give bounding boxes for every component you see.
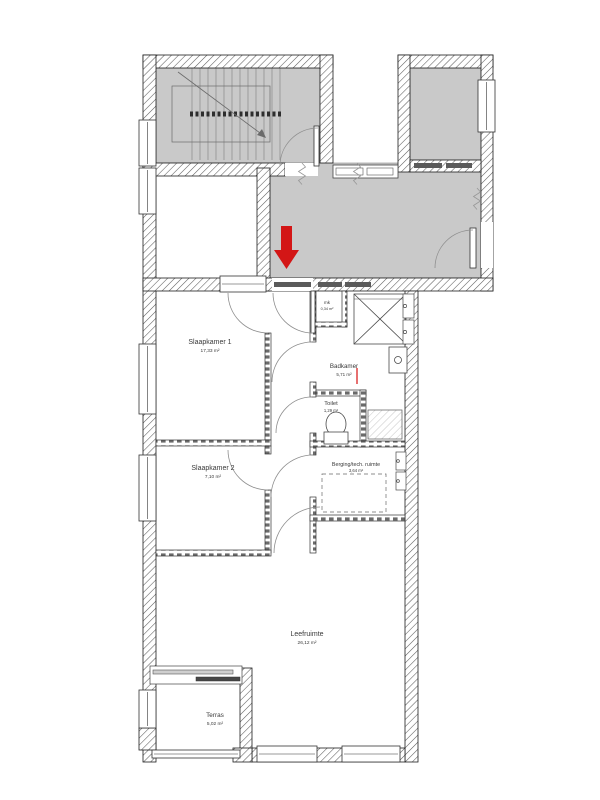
wall bbox=[320, 55, 333, 163]
wall bbox=[143, 55, 333, 68]
room-label-mk: mk bbox=[324, 300, 331, 305]
hall-top-windows bbox=[333, 165, 398, 178]
room-area-mk: 0,34 m² bbox=[321, 307, 335, 311]
wall bbox=[342, 291, 347, 327]
window bbox=[139, 344, 156, 414]
door-opening bbox=[481, 222, 493, 268]
shaft-area bbox=[410, 68, 481, 160]
window bbox=[139, 168, 156, 214]
door-lintel bbox=[345, 282, 371, 287]
room-area-toilet: 1,29 m² bbox=[324, 408, 339, 413]
room-label-terras: Terras bbox=[206, 712, 224, 719]
room-area-terras: 5,02 m² bbox=[207, 721, 224, 727]
room-area-leefruimte: 26,12 m² bbox=[298, 640, 317, 646]
floor-plan-page: Slaapkamer 1 17,33 m² mk 0,34 m² Badkame… bbox=[0, 0, 600, 800]
room-label-slaapkamer-2: Slaapkamer 2 bbox=[191, 465, 234, 472]
window bbox=[139, 690, 156, 728]
wall bbox=[360, 390, 366, 447]
wall bbox=[265, 446, 271, 454]
wall bbox=[156, 440, 271, 446]
room-area-badkamer: 5,71 m² bbox=[336, 372, 352, 377]
door-lintel bbox=[274, 282, 311, 287]
window bbox=[220, 276, 266, 292]
entrance-hall-area bbox=[270, 163, 481, 278]
room-label-leefruimte: Leefruimte bbox=[290, 631, 323, 638]
wall bbox=[310, 515, 405, 521]
room-area-berging: 3,64 m² bbox=[349, 468, 364, 473]
terrace-railing bbox=[152, 750, 240, 758]
wall bbox=[265, 490, 271, 553]
door-lintel bbox=[446, 163, 472, 168]
wall bbox=[313, 322, 347, 327]
wall bbox=[310, 497, 316, 553]
wall bbox=[398, 55, 493, 68]
toilet-fixture bbox=[324, 412, 348, 444]
floor-plan-svg: Slaapkamer 1 17,33 m² mk 0,34 m² Badkame… bbox=[0, 0, 600, 800]
wall bbox=[257, 168, 270, 291]
door-lintel bbox=[318, 282, 342, 287]
wall bbox=[139, 728, 156, 750]
window bbox=[257, 746, 317, 762]
wall bbox=[156, 550, 271, 556]
wall bbox=[265, 333, 271, 440]
door-lintel bbox=[414, 163, 442, 168]
wall bbox=[398, 55, 410, 172]
room-area-slaapkamer-1: 17,33 m² bbox=[201, 348, 220, 354]
wall bbox=[310, 382, 316, 397]
room-label-slaapkamer-1: Slaapkamer 1 bbox=[188, 339, 231, 346]
sliding-door bbox=[150, 666, 242, 684]
room-label-badkamer: Badkamer bbox=[330, 363, 358, 370]
wall bbox=[316, 390, 366, 396]
stairwell-area bbox=[156, 68, 320, 163]
washbasin bbox=[389, 347, 407, 373]
appliance bbox=[368, 410, 402, 439]
window bbox=[139, 120, 156, 166]
room-area-slaapkamer-2: 7,10 m² bbox=[205, 474, 222, 480]
window bbox=[139, 455, 156, 521]
window bbox=[342, 746, 400, 762]
room-label-toilet: Toilet bbox=[324, 401, 338, 407]
window bbox=[478, 80, 495, 132]
